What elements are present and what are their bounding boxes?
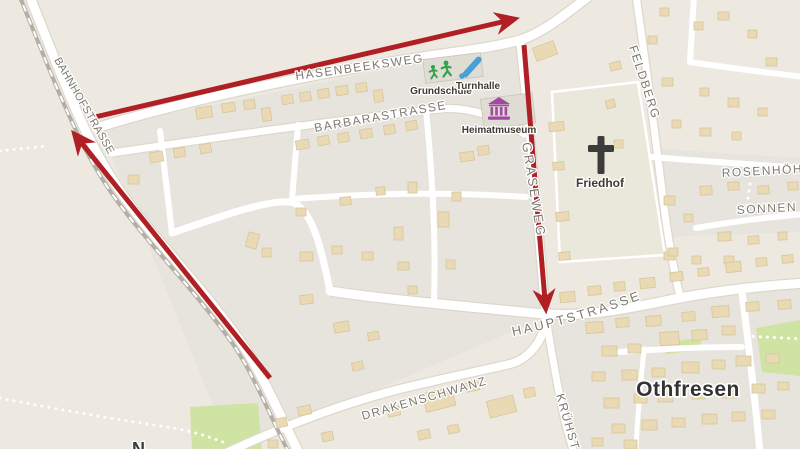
building bbox=[756, 258, 768, 267]
building bbox=[640, 277, 656, 288]
building bbox=[405, 120, 417, 131]
building bbox=[766, 354, 779, 363]
building bbox=[438, 212, 449, 227]
building bbox=[752, 384, 765, 393]
building bbox=[221, 102, 235, 113]
building bbox=[728, 98, 739, 107]
building bbox=[664, 196, 675, 205]
building bbox=[602, 346, 617, 356]
building bbox=[684, 214, 693, 222]
building bbox=[337, 132, 349, 143]
building bbox=[612, 424, 625, 433]
building bbox=[642, 420, 657, 430]
building bbox=[736, 356, 751, 366]
building bbox=[359, 128, 372, 139]
building bbox=[660, 8, 669, 16]
building bbox=[398, 262, 409, 270]
building bbox=[628, 344, 641, 353]
building bbox=[417, 429, 431, 440]
building bbox=[712, 360, 725, 369]
poi-label-heimatmuseum[interactable]: Heimatmuseum bbox=[462, 125, 537, 136]
building bbox=[335, 85, 348, 96]
building bbox=[766, 58, 777, 66]
building bbox=[758, 186, 769, 195]
building bbox=[268, 440, 278, 448]
building bbox=[408, 286, 417, 294]
building bbox=[317, 135, 329, 146]
building bbox=[748, 30, 757, 38]
building bbox=[694, 22, 703, 30]
building bbox=[700, 186, 712, 196]
building bbox=[692, 256, 701, 264]
building bbox=[394, 227, 403, 240]
building bbox=[652, 368, 665, 377]
building bbox=[592, 438, 603, 446]
map-viewport[interactable]: BAHNHOFSTRASSE HASENBEEKSWEG BARBARASTRA… bbox=[0, 0, 800, 449]
building bbox=[782, 255, 794, 264]
building bbox=[128, 175, 139, 184]
poi-label-friedhof[interactable]: Friedhof bbox=[576, 176, 625, 190]
building bbox=[698, 268, 710, 277]
building bbox=[149, 151, 164, 163]
building bbox=[592, 372, 605, 381]
building bbox=[726, 261, 742, 272]
building bbox=[362, 252, 373, 260]
building bbox=[732, 412, 745, 421]
building bbox=[299, 91, 311, 102]
building bbox=[586, 321, 604, 333]
building bbox=[559, 252, 571, 261]
map-canvas[interactable]: BAHNHOFSTRASSE HASENBEEKSWEG BARBARASTRA… bbox=[0, 0, 800, 449]
building bbox=[758, 108, 767, 116]
building bbox=[199, 143, 211, 154]
building bbox=[560, 291, 576, 302]
building bbox=[373, 89, 384, 102]
building bbox=[692, 329, 708, 340]
building bbox=[672, 120, 681, 128]
building bbox=[788, 182, 798, 191]
building bbox=[317, 88, 329, 99]
building bbox=[778, 382, 789, 390]
building bbox=[605, 99, 616, 109]
building bbox=[296, 208, 306, 216]
building bbox=[648, 36, 657, 44]
building bbox=[622, 370, 637, 380]
building bbox=[614, 282, 626, 292]
building bbox=[646, 315, 662, 326]
building bbox=[778, 232, 787, 240]
building bbox=[261, 107, 272, 121]
poi-label-turnhalle[interactable]: Turnhalle bbox=[456, 81, 501, 92]
building bbox=[702, 414, 717, 424]
building bbox=[367, 331, 379, 341]
building bbox=[682, 362, 699, 373]
building bbox=[351, 361, 363, 371]
street-label-partial-n: N bbox=[132, 439, 145, 449]
building bbox=[588, 285, 602, 295]
building bbox=[746, 302, 760, 312]
building bbox=[376, 187, 386, 196]
town-label[interactable]: Othfresen bbox=[636, 378, 740, 401]
building bbox=[300, 252, 313, 261]
building bbox=[718, 12, 729, 20]
building bbox=[295, 139, 309, 150]
building bbox=[670, 271, 684, 281]
building bbox=[459, 151, 474, 162]
building bbox=[712, 305, 730, 317]
building bbox=[728, 182, 739, 191]
building bbox=[243, 99, 255, 110]
road-topright-v bbox=[690, 0, 694, 62]
building bbox=[452, 192, 461, 201]
building bbox=[700, 128, 711, 136]
building bbox=[195, 106, 213, 119]
building bbox=[700, 88, 709, 96]
building bbox=[333, 321, 350, 333]
building bbox=[173, 147, 185, 158]
building bbox=[447, 424, 459, 434]
building bbox=[332, 246, 342, 254]
building bbox=[523, 387, 536, 398]
building bbox=[778, 300, 792, 310]
building bbox=[477, 145, 489, 155]
building bbox=[340, 197, 352, 206]
building bbox=[722, 326, 735, 335]
building bbox=[549, 121, 565, 131]
building bbox=[616, 318, 630, 328]
building bbox=[321, 431, 334, 442]
building bbox=[556, 211, 570, 221]
building bbox=[408, 182, 417, 193]
building bbox=[300, 294, 314, 304]
building bbox=[604, 398, 619, 408]
building bbox=[662, 78, 673, 86]
building bbox=[672, 418, 685, 427]
building bbox=[624, 440, 637, 449]
building bbox=[614, 140, 623, 148]
building bbox=[682, 312, 696, 322]
building bbox=[748, 236, 759, 245]
building bbox=[446, 260, 455, 269]
building bbox=[718, 232, 731, 242]
building bbox=[553, 162, 565, 171]
building bbox=[660, 331, 680, 345]
building bbox=[383, 124, 395, 135]
building bbox=[262, 248, 271, 257]
building bbox=[355, 82, 367, 93]
building bbox=[762, 410, 775, 419]
building bbox=[732, 132, 741, 140]
building bbox=[281, 94, 293, 105]
building bbox=[275, 417, 288, 428]
building bbox=[668, 248, 678, 256]
